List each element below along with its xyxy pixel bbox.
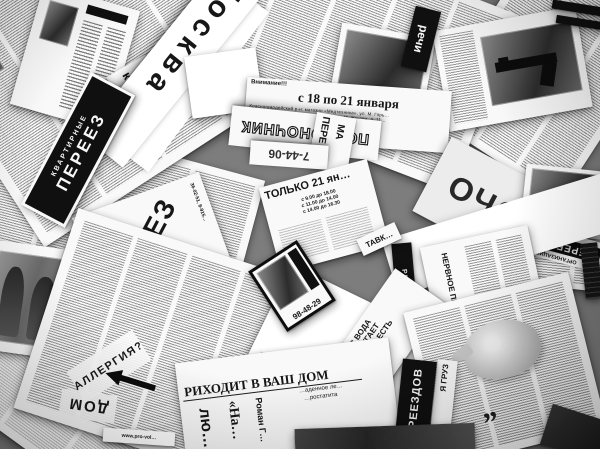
handgun-silhouette [480, 21, 583, 106]
figure-silhouette [0, 265, 27, 337]
newspaper-collage-photo: речи кв… Москва Внимание!!! с 18 по 21 я… [0, 0, 600, 449]
elez-phone: 36-02-51, 8-915… [188, 182, 208, 222]
photo-handgun [480, 21, 583, 106]
pere-text: ПЕРЕ [316, 116, 332, 145]
prihodit-vertical: лю… [194, 407, 217, 449]
rechi-text: речи [411, 24, 431, 55]
photo-small [39, 0, 79, 47]
dom-text: ДОМ [67, 395, 110, 418]
phone-scrap: 7-44-06 [249, 140, 328, 169]
phone-4406-text: 7-44-06 [268, 147, 310, 164]
prihodit-vertical: «На… [224, 400, 245, 441]
ya-gruz-text: Я ГРУЗ [438, 364, 450, 393]
prihodit-vertical: Роман Г… [254, 397, 269, 443]
ma-text: МА [333, 123, 347, 140]
small-dark-strip [580, 242, 600, 298]
website-text: www.pro-vol… [121, 433, 156, 441]
prihodit-line: …ростатита [304, 392, 338, 402]
